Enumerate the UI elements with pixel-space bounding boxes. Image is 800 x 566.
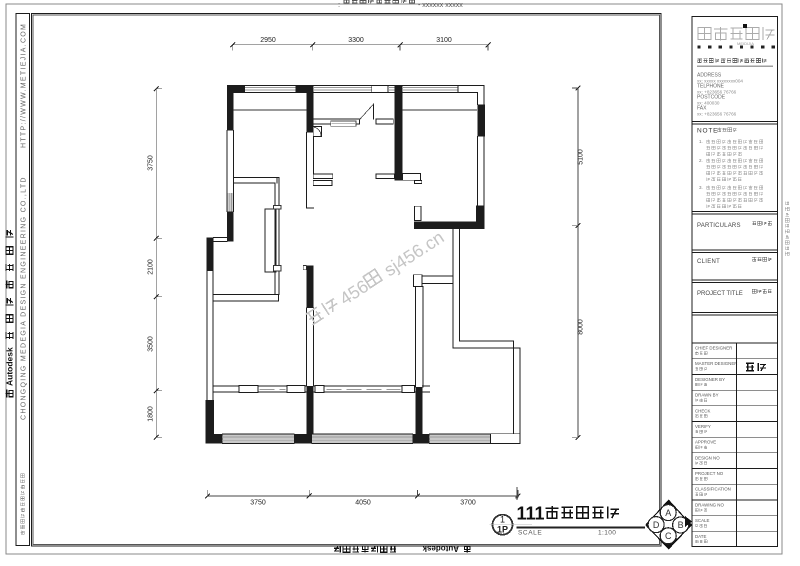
svg-text:DATE: DATE	[695, 534, 706, 539]
svg-text:A: A	[665, 508, 671, 518]
svg-text:1: 1	[500, 515, 505, 525]
svg-text:1800: 1800	[148, 406, 155, 422]
svg-text:Autodesk: Autodesk	[422, 544, 459, 553]
svg-text:1P: 1P	[497, 525, 508, 535]
svg-text:NOTE: NOTE	[697, 128, 718, 135]
svg-text:3700: 3700	[460, 500, 476, 507]
svg-text:xx: 400030: xx: 400030	[697, 101, 720, 106]
svg-text:xx: +823656 76766: xx: +823656 76766	[697, 90, 737, 95]
svg-text:VERIFY: VERIFY	[695, 424, 711, 429]
svg-text:1.: 1.	[699, 139, 703, 144]
svg-text:2.: 2.	[699, 158, 703, 163]
svg-text:3300: 3300	[348, 37, 364, 44]
svg-text:HTTP://WWW.METIEJIA.COM: HTTP://WWW.METIEJIA.COM	[21, 23, 28, 148]
svg-text:PARTICULARS: PARTICULARS	[697, 223, 741, 229]
svg-text:5100: 5100	[578, 149, 585, 165]
svg-text:8000: 8000	[578, 319, 585, 335]
svg-text:DESIGNER BY: DESIGNER BY	[695, 377, 725, 382]
svg-text:111: 111	[517, 504, 545, 524]
svg-text:DESIGN NO: DESIGN NO	[695, 455, 720, 460]
svg-text:Autodesk: Autodesk	[5, 347, 15, 386]
svg-text:4050: 4050	[355, 500, 371, 507]
svg-text:PROJECT TITLE: PROJECT TITLE	[697, 291, 743, 297]
svg-text:SCALE: SCALE	[518, 530, 542, 537]
svg-text:xx: xxxxx xxxxxxxx004: xx: xxxxx xxxxxxxx004	[697, 79, 743, 84]
svg-text:3100: 3100	[436, 37, 452, 44]
svg-text:CHIEF DESIGNER: CHIEF DESIGNER	[695, 346, 732, 351]
svg-text:CLASSIFICATION: CLASSIFICATION	[695, 487, 731, 492]
svg-text:3.: 3.	[699, 185, 703, 190]
svg-text:SCALE: SCALE	[695, 518, 709, 523]
svg-text:C: C	[665, 531, 672, 541]
svg-text:PROJECT NO: PROJECT NO	[695, 471, 724, 476]
svg-text:B: B	[678, 520, 684, 530]
svg-text:DRAWING NO: DRAWING NO	[695, 502, 724, 507]
svg-text:1:100: 1:100	[598, 530, 616, 537]
svg-text:DRAWN BY: DRAWN BY	[695, 393, 719, 398]
svg-text:MEIDIJIA: MEIDIJIA	[737, 41, 754, 46]
svg-text:CLIENT: CLIENT	[697, 259, 720, 265]
svg-text:xx: +823656 76766: xx: +823656 76766	[697, 112, 737, 117]
svg-text:3500: 3500	[148, 336, 155, 352]
svg-text:2950: 2950	[260, 37, 276, 44]
svg-text:3750: 3750	[250, 500, 266, 507]
svg-text:CHECK: CHECK	[695, 408, 710, 413]
svg-text:3750: 3750	[148, 155, 155, 171]
svg-text:D: D	[653, 520, 660, 530]
svg-text:APPROVE: APPROVE	[695, 440, 716, 445]
svg-text:MASTER DESIGNER: MASTER DESIGNER	[695, 361, 737, 366]
svg-text::: :	[338, 0, 340, 9]
svg-text:CHONGQING MEDEGIA DESIGN ENGIN: CHONGQING MEDEGIA DESIGN ENGINEERING CO.…	[21, 176, 28, 420]
svg-text:2100: 2100	[148, 259, 155, 275]
svg-text:- xxxxxx xxxxx: - xxxxxx xxxxx	[418, 2, 463, 9]
